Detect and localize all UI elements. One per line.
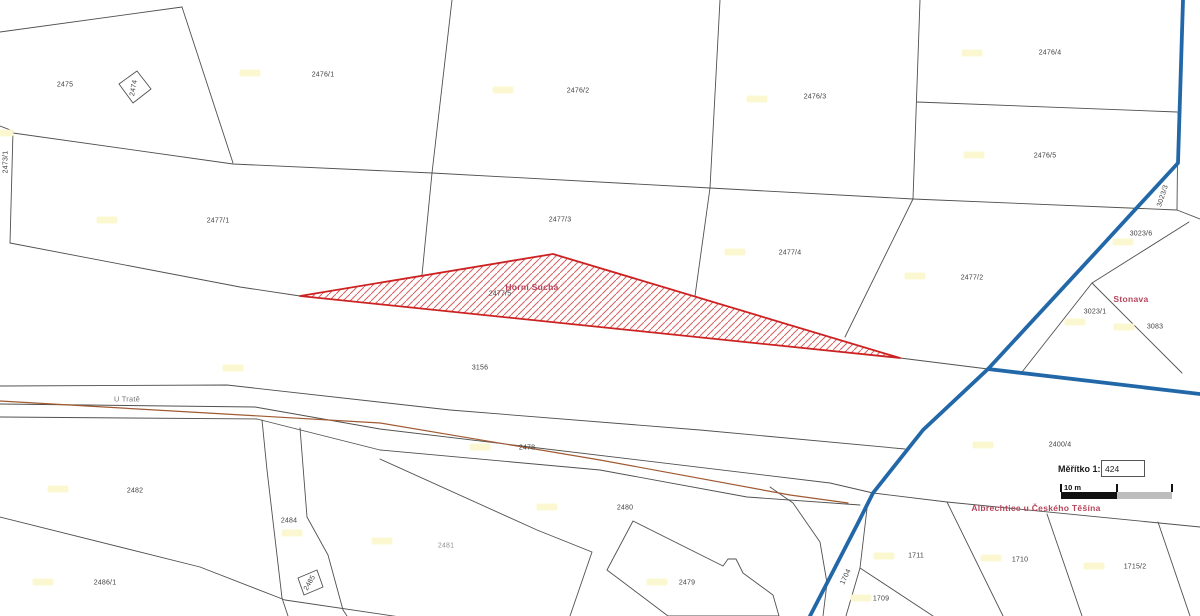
yellow-parcel-marker xyxy=(372,538,393,545)
parcel-number-label: 2479 xyxy=(679,580,695,587)
scale-bar-black xyxy=(1061,492,1117,499)
yellow-parcel-marker xyxy=(1114,324,1135,331)
yellow-parcel-marker xyxy=(1084,563,1105,570)
parcel-boundary-line xyxy=(845,199,913,337)
parcel-number-label: 1710 xyxy=(1012,557,1028,564)
yellow-parcel-marker xyxy=(747,96,768,103)
parcel-number-label: 2480 xyxy=(617,505,633,512)
parcel-number-label: 1711 xyxy=(908,553,924,560)
parcel-boundary-line xyxy=(695,188,710,296)
yellow-parcel-marker xyxy=(647,579,668,586)
yellow-parcel-marker xyxy=(1113,239,1134,246)
parcel-number-label: 3156 xyxy=(472,365,488,372)
building-outlines xyxy=(119,71,779,616)
parcel-boundary-line xyxy=(13,133,1177,210)
parcel-number-label-muted: 2481 xyxy=(438,543,454,550)
yellow-parcel-marker xyxy=(493,87,514,94)
parcel-boundary-line xyxy=(913,0,920,199)
yellow-parcel-marker xyxy=(0,130,14,137)
parcel-number-label: 2477/1 xyxy=(207,218,230,225)
parcel-boundary-line xyxy=(917,102,1177,112)
yellow-parcel-marker xyxy=(240,70,261,77)
yellow-parcel-marker xyxy=(725,249,746,256)
parcel-number-label: 2482 xyxy=(127,488,143,495)
parcel-boundary-line xyxy=(710,0,720,188)
cadastre-boundary-lines xyxy=(810,0,1200,616)
parcel-boundary-line xyxy=(182,7,233,163)
scale-title: Měřítko 1: xyxy=(1058,464,1101,474)
parcel-number-label: 2476/3 xyxy=(804,94,827,101)
parcel-number-label: 1715/2 xyxy=(1124,564,1147,571)
yellow-parcel-marker xyxy=(851,595,872,602)
map-canvas[interactable]: 247524742473/12476/12476/22476/32476/424… xyxy=(0,0,1200,616)
cadastral-map-drawing xyxy=(0,0,1200,616)
parcel-boundary-line xyxy=(422,173,432,275)
parcel-number-label: 2477/3 xyxy=(549,217,572,224)
scale-bar-gray xyxy=(1117,492,1172,499)
parcel-number-label: 2486/1 xyxy=(94,580,117,587)
territory-name-label: Stonava xyxy=(1113,294,1148,304)
parcel-number-label: 3023/1 xyxy=(1084,309,1107,316)
yellow-parcel-marker xyxy=(962,50,983,57)
parcel-number-label: 2476/4 xyxy=(1039,50,1062,57)
parcel-number-label: 2476/1 xyxy=(312,72,335,79)
yellow-parcel-marker xyxy=(973,442,994,449)
parcel-number-label: 2477/2 xyxy=(961,275,984,282)
parcel-boundary-line xyxy=(1177,210,1200,219)
highlighted-parcel-outline xyxy=(300,254,900,358)
cadastre-boundary-blue-line xyxy=(810,0,1183,616)
yellow-parcel-marker xyxy=(48,486,69,493)
parcel-boundary-line xyxy=(380,459,592,616)
parcel-number-label: 2478 xyxy=(519,445,535,452)
parcel-boundary-line xyxy=(1047,514,1082,616)
yellow-parcel-marker xyxy=(33,579,54,586)
parcel-number-label: 2484 xyxy=(281,518,297,525)
yellow-parcel-marker xyxy=(1065,319,1086,326)
yellow-parcel-marker xyxy=(282,530,303,537)
parcel-boundary-line xyxy=(0,517,400,616)
parcel-number-label: 2476/5 xyxy=(1034,153,1057,160)
parcel-boundary-line xyxy=(0,126,13,243)
yellow-parcel-marker xyxy=(537,504,558,511)
yellow-parcel-marker xyxy=(981,555,1002,562)
scale-input[interactable] xyxy=(1101,460,1145,477)
street-name-label: U Tratě xyxy=(114,395,140,404)
yellow-parcel-marker xyxy=(905,273,926,280)
yellow-parcel-marker xyxy=(97,217,118,224)
parcel-number-label: 2475 xyxy=(57,82,73,89)
cadastre-boundary-blue-line xyxy=(988,369,1200,394)
yellow-parcel-marker xyxy=(964,152,985,159)
parcel-number-label: 2477/4 xyxy=(779,250,802,257)
highlighted-parcel xyxy=(300,254,900,358)
yellow-parcel-marker xyxy=(874,553,895,560)
parcel-number-label: 3023/6 xyxy=(1130,231,1153,238)
scale-bar-label: 10 m xyxy=(1064,483,1081,492)
scale-tick-mid xyxy=(1116,484,1118,492)
building-outline xyxy=(607,521,779,616)
yellow-parcel-marker xyxy=(223,365,244,372)
scale-tick-right xyxy=(1171,484,1173,492)
parcel-number-label: 3083 xyxy=(1147,324,1163,331)
parcel-number-label: 2473/1 xyxy=(3,151,10,174)
scale-widget: Měřítko 1: 10 m xyxy=(1040,455,1200,515)
scale-tick-left xyxy=(1060,484,1062,492)
parcel-boundary-line xyxy=(1158,522,1190,616)
parcel-number-label: 1709 xyxy=(873,596,889,603)
parcel-number-label: 2400/4 xyxy=(1049,442,1072,449)
parcel-boundary-line xyxy=(0,7,182,32)
parcel-boundary-line xyxy=(432,0,452,173)
parcel-number-label: 2476/2 xyxy=(567,88,590,95)
yellow-parcel-marker xyxy=(470,444,491,451)
territory-name-label: Horní Suchá xyxy=(505,282,558,292)
